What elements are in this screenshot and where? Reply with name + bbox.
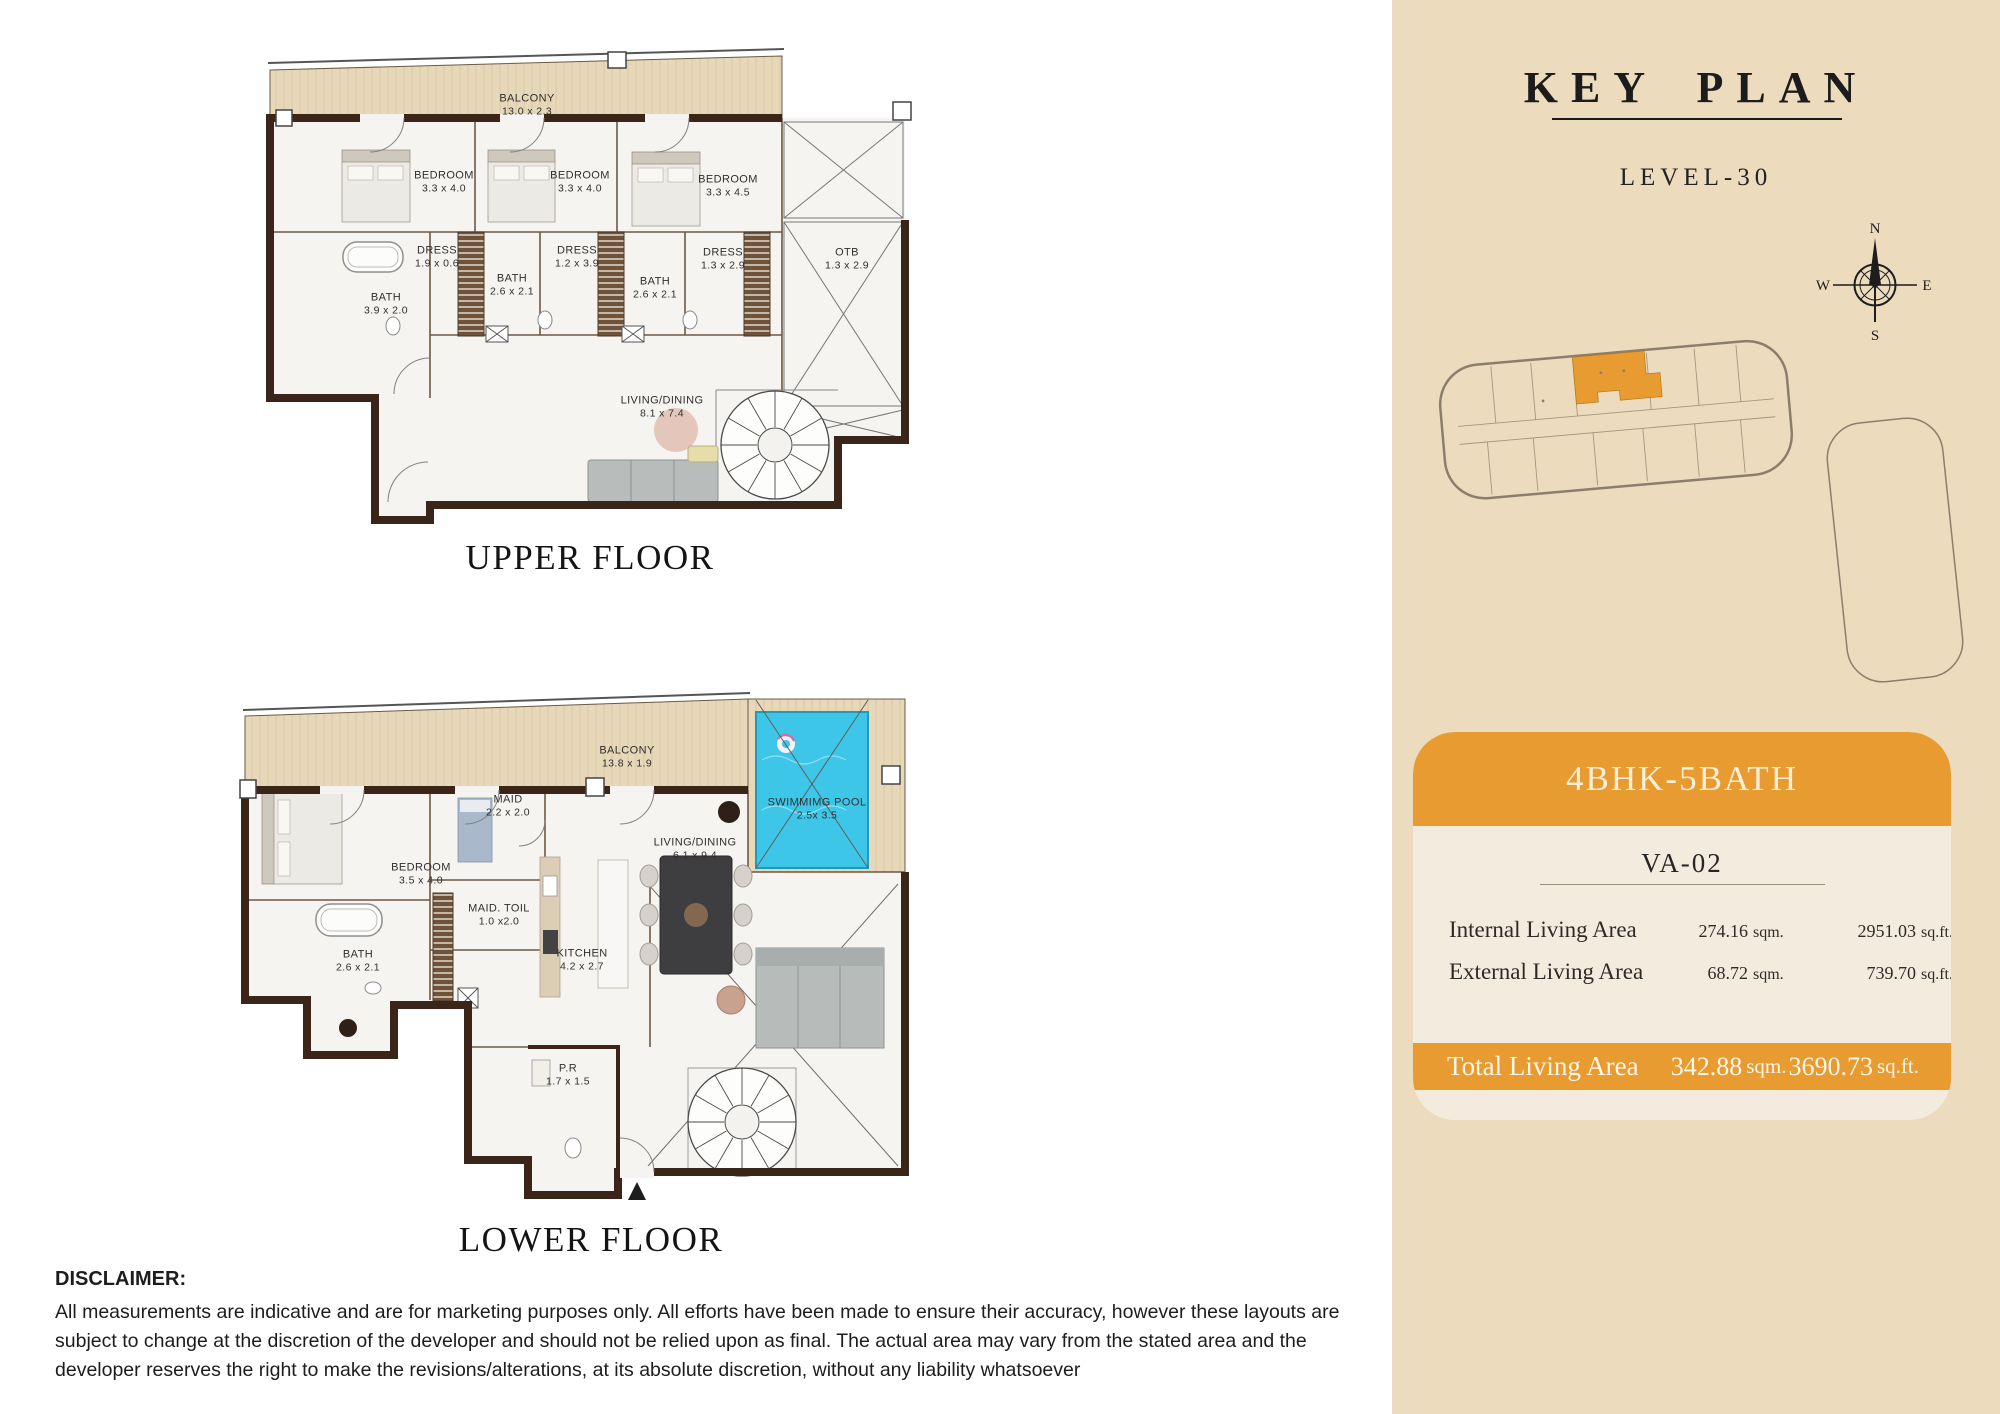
compass-n-label: N [1870, 221, 1881, 237]
upper-floor-caption: UPPER FLOOR [466, 538, 715, 578]
room-label-bath-lower: BATH2.6 x 2.1 [336, 949, 380, 974]
unit-card: 4BHK-5BATH VA-02 Internal Living Area 27… [1413, 732, 1951, 1120]
area-rows: Internal Living Area 274.16 sqm. 2951.03… [1413, 917, 1951, 985]
unit-type-header: 4BHK-5BATH [1413, 732, 1951, 826]
key-plan-title-underline [1552, 118, 1842, 120]
room-label-kitchen: KITCHEN4.2 x 2.7 [556, 948, 607, 973]
room-label-bath-2: BATH2.6 x 2.1 [490, 273, 534, 298]
unit-code: VA-02 [1413, 848, 1951, 879]
compass-e-label: E [1922, 278, 1931, 294]
room-label-maid-toilet: MAID. TOIL1.0 x2.0 [468, 903, 530, 928]
disclaimer-body: All measurements are indicative and are … [55, 1298, 1370, 1385]
upper-spiral-stair [721, 391, 829, 499]
lower-floor-caption: LOWER FLOOR [459, 1220, 723, 1260]
room-label-maid: MAID2.2 x 2.0 [486, 794, 530, 819]
room-label-powder-room: P.R1.7 x 1.5 [546, 1063, 590, 1088]
room-label-bath-1: BATH3.9 x 2.0 [364, 292, 408, 317]
compass-w-label: W [1816, 278, 1831, 294]
room-label-otb: OTB1.3 x 2.9 [825, 247, 869, 272]
lower-wardrobe [433, 893, 453, 1001]
room-label-bedroom-1: BEDROOM3.3 x 4.0 [414, 170, 474, 195]
room-label-living-lower: LIVING/DINING6.1 x 9.4 [654, 837, 737, 862]
unit-type-label: 4BHK-5BATH [1566, 759, 1798, 799]
external-area-row: External Living Area 68.72 sqm. 739.70 s… [1449, 959, 1927, 985]
lower-spiral-stair [688, 1068, 796, 1176]
lower-bed [262, 792, 342, 884]
room-label-bath-3: BATH2.6 x 2.1 [633, 276, 677, 301]
key-plan-level: LEVEL-30 [1392, 164, 2000, 192]
room-label-balcony-lower: BALCONY13.8 x 1.9 [599, 745, 654, 770]
room-label-dress-1: DRESS1.9 x 0.6 [415, 245, 459, 270]
room-label-bedroom-lower: BEDROOM3.5 x 4.0 [391, 862, 451, 887]
highlighted-unit [1572, 350, 1662, 404]
internal-area-row: Internal Living Area 274.16 sqm. 2951.03… [1449, 917, 1927, 943]
disclaimer-heading: DISCLAIMER: [55, 1268, 1370, 1291]
entry-arrow [628, 1182, 646, 1200]
disclaimer: DISCLAIMER: All measurements are indicat… [55, 1268, 1370, 1385]
unit-code-underline [1540, 884, 1825, 885]
room-label-bedroom-3: BEDROOM3.3 x 4.5 [698, 174, 758, 199]
room-label-bedroom-2: BEDROOM3.3 x 4.0 [550, 170, 610, 195]
total-living-area-bar: Total Living Area 342.88 sqm. 3690.73 sq… [1413, 1043, 1951, 1090]
key-plan-title: KEY PLAN [1392, 62, 2000, 113]
key-plan-map [1395, 325, 1995, 715]
room-label-dress-3: DRESS1.3 x 2.9 [701, 247, 745, 272]
room-label-balcony: BALCONY13.0 x 2.3 [499, 93, 554, 118]
upper-beds [342, 150, 700, 226]
room-label-swimming-pool: SWIMMIMG POOL2.5x 3.5 [768, 797, 867, 822]
room-label-living-upper: LIVING/DINING8.1 x 7.4 [621, 395, 704, 420]
brochure-page: BALCONY13.0 x 2.3 BEDROOM3.3 x 4.0 BEDRO… [0, 0, 2000, 1414]
dining-set [640, 856, 752, 974]
room-label-dress-2: DRESS1.2 x 3.9 [555, 245, 599, 270]
secondary-building-outline [1824, 415, 1967, 686]
swimming-pool [756, 700, 868, 868]
upper-floor-plan [240, 40, 930, 530]
